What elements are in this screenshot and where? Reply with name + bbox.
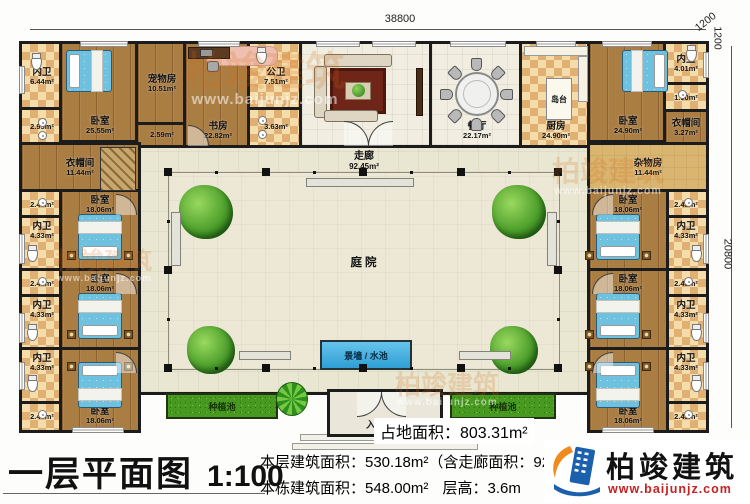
window-icon [703, 234, 709, 264]
bed-icon [596, 293, 640, 339]
brand-logo: 柏竣建筑 www.baijunjz.com [544, 440, 750, 502]
window-icon [316, 41, 360, 47]
room-area: 18.06m² [86, 285, 114, 293]
dim-right-label: 20800 [721, 239, 733, 270]
bench-icon [239, 351, 291, 360]
column-dot [557, 318, 560, 321]
room-utility-right: 杂物房11.44m² [590, 145, 706, 192]
column-dot [164, 364, 172, 372]
tree-icon [492, 185, 546, 239]
sink-icon [684, 410, 693, 419]
dining-chair [471, 118, 482, 131]
bed-icon [622, 50, 668, 92]
bench-icon [547, 212, 557, 266]
column-dot [457, 364, 465, 372]
brand-logo-icon [546, 442, 604, 498]
window-icon [198, 41, 240, 47]
column-dot [164, 266, 172, 274]
tree-icon [179, 185, 233, 239]
column-dot [167, 318, 170, 321]
dining-chair [471, 58, 482, 71]
nightstand-icon [67, 330, 76, 339]
window-icon [703, 362, 709, 390]
window-icon [450, 41, 506, 47]
window-icon [80, 41, 128, 47]
column-dot [508, 171, 511, 174]
bench-icon [171, 212, 181, 266]
room-area: 18.06m² [614, 417, 642, 425]
sofa-top [324, 54, 392, 67]
sink-icon [38, 118, 47, 127]
entry-step-2 [292, 443, 478, 450]
island-label: 岛台 [551, 94, 567, 105]
kitchen-counter-side [578, 56, 588, 102]
column-dot [359, 364, 367, 372]
room-area: 4.33m² [674, 232, 698, 240]
tv-cabinet [416, 68, 423, 116]
dim-offset-right: 1200 [712, 26, 724, 49]
window-icon [536, 41, 576, 47]
dining-chair [440, 89, 453, 100]
sheet-title: 一层平面图 1:100 [8, 446, 284, 497]
bed-icon [78, 293, 122, 339]
room-area: 18.06m² [86, 206, 114, 214]
planter-left: 种植池 [166, 393, 278, 419]
room-area: 4.33m² [30, 311, 54, 319]
nightstand-icon [585, 251, 594, 260]
sheet-title-text: 一层平面图 [8, 446, 193, 497]
room-area: 11.44m² [634, 169, 662, 177]
room-area: 4.33m² [30, 364, 54, 372]
tree-icon [490, 326, 538, 374]
dim-top-label: 38800 [330, 13, 470, 25]
window-icon [602, 41, 652, 47]
sink-icon [38, 410, 47, 419]
dining-chair [500, 89, 513, 100]
column-dot [262, 168, 270, 176]
nightstand-icon [124, 251, 133, 260]
bed-icon [596, 214, 640, 260]
column-dot [262, 364, 270, 372]
sink-icon [684, 198, 693, 207]
column-dot [313, 171, 316, 174]
water-label: 景墙 / 水池 [344, 349, 388, 362]
column-dot [508, 367, 511, 370]
kitchen-island: 岛台 [546, 78, 572, 120]
room-area: 4.33m² [674, 311, 698, 319]
courtyard-label: 庭院 [329, 254, 401, 270]
room-area: 4.33m² [30, 232, 54, 240]
title-underline [3, 493, 265, 494]
room-area: 7.51m² [264, 78, 288, 86]
column-dot [164, 168, 172, 176]
nightstand-icon [585, 330, 594, 339]
room-area: 24.90m² [542, 132, 570, 140]
tree-icon [187, 326, 235, 374]
nightstand-icon [642, 251, 651, 260]
sink-icon [38, 131, 47, 140]
room-area: 10.51m² [148, 85, 176, 93]
nightstand-icon [124, 330, 133, 339]
nightstand-icon [642, 330, 651, 339]
room-hall-259: 2.59m² [138, 125, 186, 145]
room-area: 4.33m² [674, 364, 698, 372]
window-icon [19, 234, 25, 264]
window-icon [703, 313, 709, 343]
plant-icon [352, 84, 365, 97]
room-cloak-tr: 衣帽间3.27m² [666, 112, 706, 145]
room-area: 3.63m² [264, 123, 288, 131]
bed-icon [78, 214, 122, 260]
kitchen-counter-top [524, 46, 588, 56]
floor-plan-sheet: 走廊 92.45m² 庭院 景墙 / 水池 入户门廊 种植池 种植池 岛台 38… [0, 0, 750, 504]
sheet-scale: 1:100 [207, 460, 284, 494]
sink-icon [258, 116, 267, 125]
dim-line-top [30, 29, 706, 30]
brand-name: 柏竣建筑 [606, 444, 738, 486]
brand-site: www.baijunjz.com [608, 482, 732, 496]
sink-icon [38, 277, 47, 286]
column-dot [167, 220, 170, 223]
window-icon [19, 313, 25, 343]
room-area: 2.59m² [150, 131, 174, 139]
room-area: 25.55m² [86, 127, 114, 135]
room-store-363: 3.63m² [250, 110, 302, 145]
nightstand-icon [642, 362, 651, 371]
monitor-icon [200, 49, 213, 57]
bed-icon [66, 50, 112, 92]
room-area: 6.44m² [30, 78, 54, 86]
column-dot [313, 367, 316, 370]
hatch-area [100, 147, 136, 191]
palm-icon [276, 382, 308, 416]
room-area: 22.82m² [204, 132, 232, 140]
room-area: 18.06m² [614, 285, 642, 293]
window-icon [703, 52, 709, 78]
column-dot [215, 171, 218, 174]
planter-right: 种植池 [450, 393, 556, 419]
column-dot [557, 220, 560, 223]
stat-floor-height: 层高：3.6m [443, 480, 521, 497]
corridor-name: 走廊 [314, 147, 414, 162]
room-store-190: 1.90m² [666, 85, 706, 112]
window-icon [602, 427, 654, 433]
room-area: 24.90m² [614, 127, 642, 135]
sink-icon [258, 130, 267, 139]
room-area: 4.01m² [674, 65, 698, 73]
planter-right-label: 种植池 [489, 400, 516, 413]
planter-left-label: 种植池 [208, 400, 235, 413]
column-dot [457, 168, 465, 176]
stat-building-area: 本栋建筑面积：548.00m² 层高：3.6m [260, 477, 521, 498]
nightstand-icon [67, 362, 76, 371]
stat-land-area: 占地面积：803.31m² [374, 418, 534, 444]
room-pet-room: 宠物房10.51m² [138, 44, 186, 125]
window-icon [372, 41, 416, 47]
desk-chair [207, 61, 219, 72]
column-dot [410, 171, 413, 174]
sofa-bottom [324, 110, 378, 122]
window-icon [72, 427, 124, 433]
sink-icon [678, 90, 687, 99]
room-area: 18.06m² [86, 417, 114, 425]
stat-building-area-text: 本栋建筑面积：548.00m² [260, 480, 428, 497]
window-icon [19, 362, 25, 390]
column-dot [554, 168, 562, 176]
room-bath-tl: 内卫6.44m² [22, 44, 62, 110]
dim-line-right [731, 46, 732, 428]
column-dot [410, 367, 413, 370]
window-icon [19, 66, 25, 94]
nightstand-icon [67, 251, 76, 260]
room-area: 11.44m² [66, 169, 94, 177]
column-dot [554, 364, 562, 372]
room-area: 18.06m² [614, 206, 642, 214]
bench-icon [306, 178, 414, 187]
sink-icon [684, 277, 693, 286]
room-area: 3.27m² [674, 129, 698, 137]
sink-icon [38, 198, 47, 207]
room-area: 22.17m² [463, 132, 491, 140]
dining-table [455, 72, 499, 116]
column-dot [554, 266, 562, 274]
bench-icon [459, 351, 511, 360]
column-dot [215, 367, 218, 370]
column-dot [359, 168, 367, 176]
